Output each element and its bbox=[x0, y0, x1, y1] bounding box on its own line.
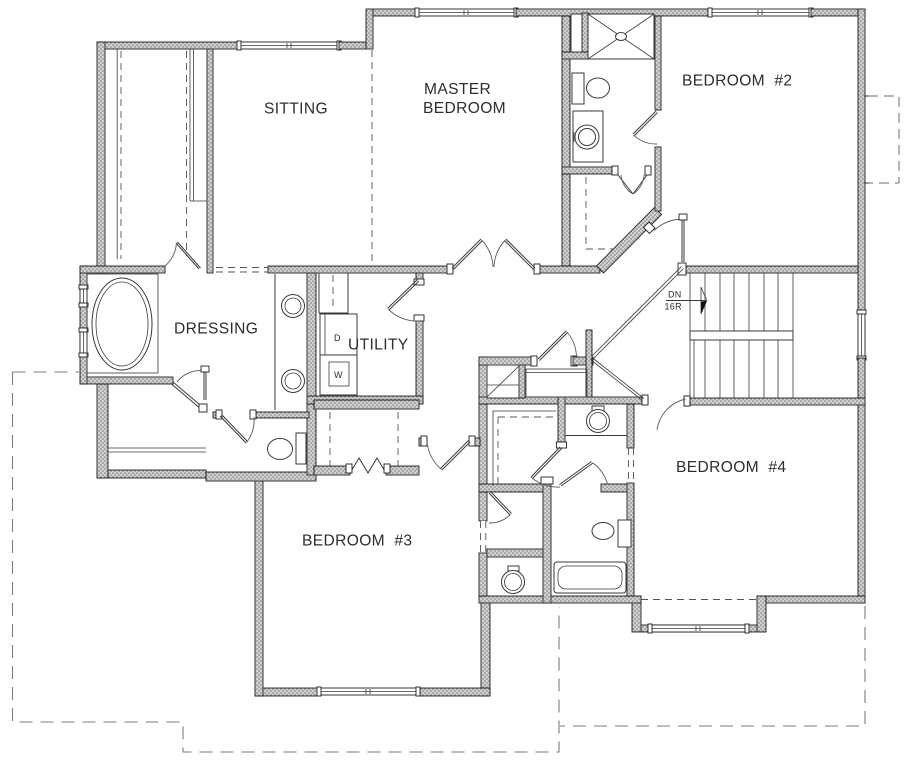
svg-text:16R: 16R bbox=[665, 302, 683, 312]
svg-text:UTILITY: UTILITY bbox=[348, 337, 409, 354]
svg-text:BEDROOM: BEDROOM bbox=[423, 100, 506, 117]
svg-text:DRESSING: DRESSING bbox=[174, 321, 258, 338]
svg-text:BEDROOM #2: BEDROOM #2 bbox=[682, 73, 792, 90]
svg-text:W: W bbox=[334, 370, 343, 380]
svg-text:DN: DN bbox=[668, 290, 682, 300]
svg-text:SITTING: SITTING bbox=[264, 101, 328, 118]
svg-text:D: D bbox=[334, 333, 341, 343]
svg-text:MASTER: MASTER bbox=[424, 81, 491, 98]
svg-text:BEDROOM #3: BEDROOM #3 bbox=[302, 533, 412, 550]
svg-text:BEDROOM #4: BEDROOM #4 bbox=[676, 459, 786, 476]
